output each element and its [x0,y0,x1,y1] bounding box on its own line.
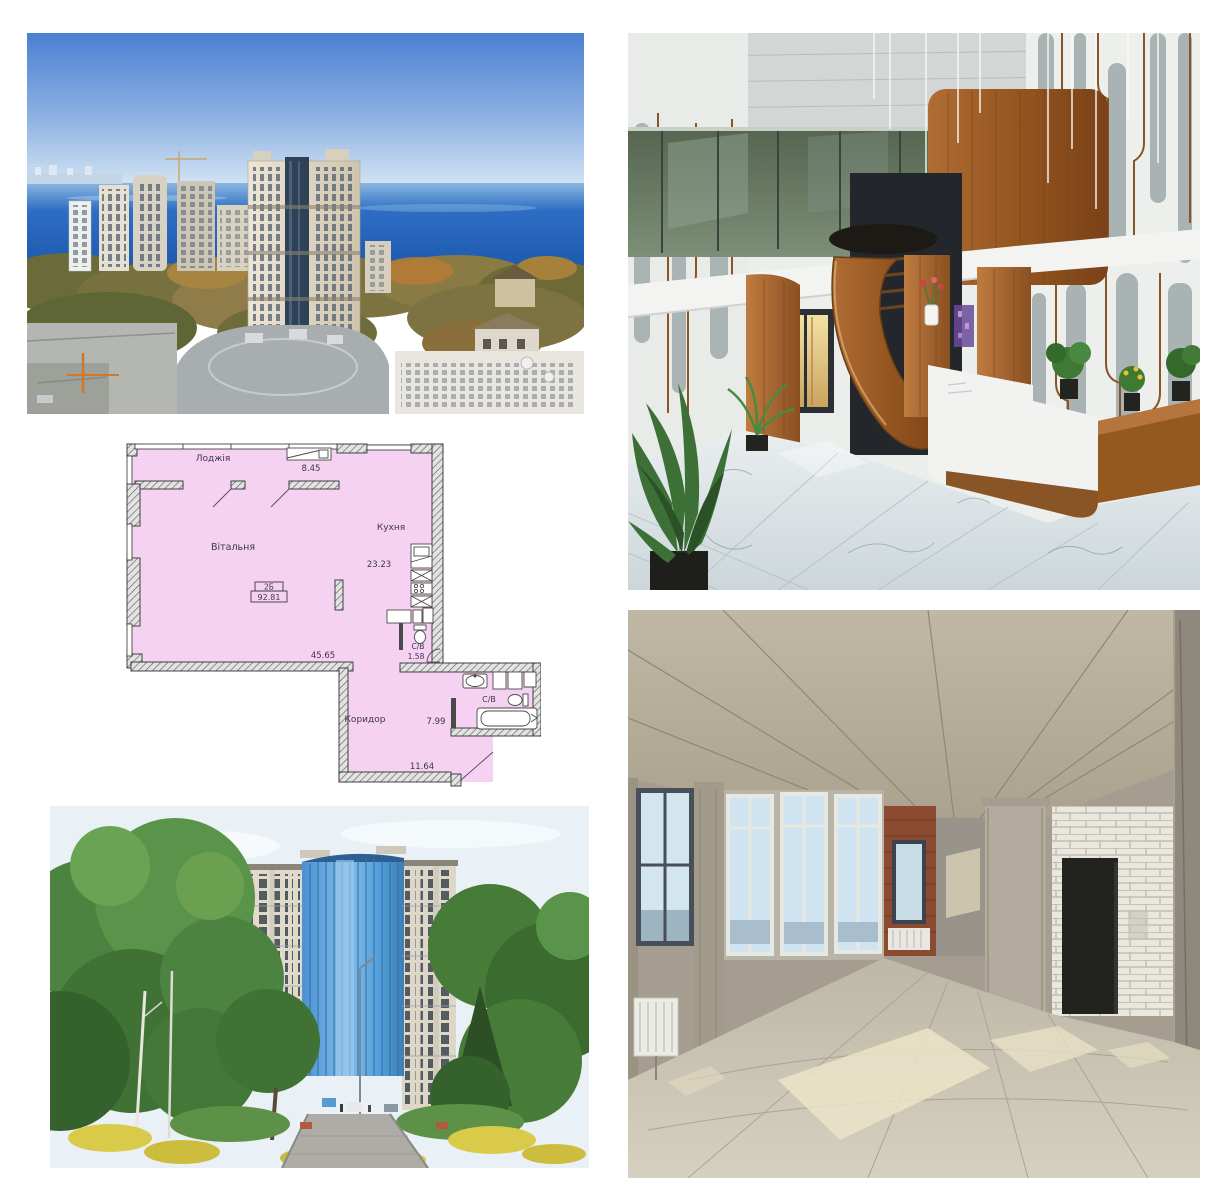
window-living-left-2 [127,624,132,656]
label-corridor: Коридор [345,715,386,725]
real-estate-collage: 2Б 92.81 Лоджія 8.45 Вітальня 45.65 Кухн… [0,0,1227,1200]
window-kitchen [367,445,411,450]
wall-left-2 [127,558,140,626]
photo-building-from-park [50,806,589,1168]
area-loggia: 8.45 [302,464,321,474]
window-living-left-1 [127,524,132,560]
bathroom-toilet-icon [508,694,528,706]
unit-total-area: 92.81 [258,593,281,602]
shell-photo-art [628,610,1200,1178]
window-loggia-left [127,456,132,484]
label-loggia: Лоджія [196,454,231,464]
photo-aerial-sea-view [27,33,584,414]
aerial-photo-art [27,33,584,414]
wc-toilet-icon [414,625,426,644]
bottom-right-building [395,351,584,414]
counter-washer-icon [387,608,433,623]
area-wc: 1.58 [408,652,425,661]
wall-corridor-top [400,663,541,672]
unit-type: 2Б [264,583,274,592]
label-kitchen: Кухня [377,523,405,533]
floor-plan-drawing: 2Б 92.81 Лоджія 8.45 Вітальня 45.65 Кухн… [125,436,541,788]
park-photo-art [50,806,589,1168]
area-bathroom: 7.99 [427,717,446,727]
round-roof-building [177,325,389,414]
photo-unfinished-interior [628,610,1200,1178]
wall-living-bottom [131,662,353,671]
left-curved-wood-wall [746,274,800,458]
center-column [980,798,1052,1018]
photo-lobby-interior [628,33,1200,590]
right-small-tower [365,241,391,293]
wall-entry-jamb [451,774,461,786]
wall-bathroom-partition [451,698,456,728]
lobby-photo-art [628,33,1200,590]
floor-plan: 2Б 92.81 Лоджія 8.45 Вітальня 45.65 Кухн… [125,436,541,788]
window-trio [724,790,884,960]
block-wall [1052,806,1174,1016]
doorway [1062,858,1118,1014]
wall-top-mid [337,444,367,453]
wall-pillar-stub [335,580,343,610]
bathroom-sink-icon [463,674,487,688]
industrial-rooftops [27,323,177,414]
brick-wall-strip [884,806,936,956]
label-wc: С/В [412,642,425,651]
label-bathroom: С/В [482,695,496,704]
wall-loggia-divider-3 [289,481,339,489]
washing-machine-icon [493,672,536,689]
wall-right [432,444,443,670]
wall-left-1 [127,484,140,526]
ac-unit-icon [287,448,331,460]
area-living: 45.65 [311,651,335,661]
area-corridor: 11.64 [410,762,434,772]
area-kitchen: 23.23 [367,560,391,570]
wall-loggia-divider-2 [231,481,245,489]
wall-bottom [339,772,451,782]
bathtub-icon [477,708,537,729]
wall-corridor-left [339,668,348,782]
wall-loggia-divider-1 [135,481,183,489]
label-living: Вітальня [211,542,255,553]
kitchen-appliances-icon [411,544,432,607]
back-gray-wall [936,818,990,956]
